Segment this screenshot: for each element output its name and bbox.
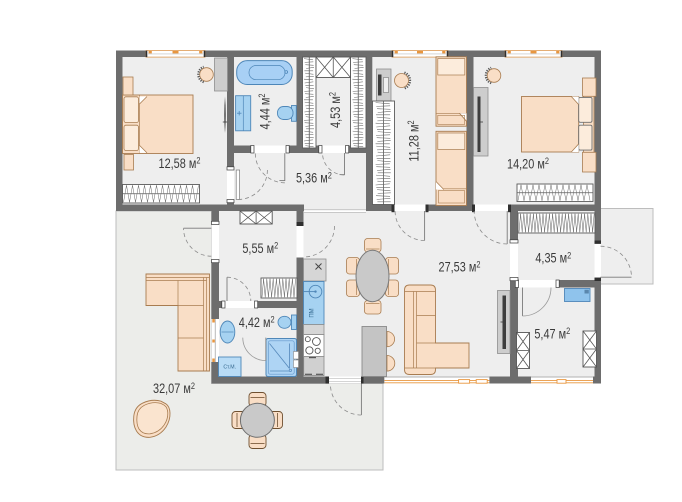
svg-text:4,44 м2: 4,44 м2 (256, 93, 273, 129)
svg-text:4,35 м2: 4,35 м2 (535, 249, 571, 266)
svg-text:5,36 м2: 5,36 м2 (296, 169, 332, 186)
svg-text:32,07 м2: 32,07 м2 (153, 380, 195, 397)
svg-text:5,47 м2: 5,47 м2 (534, 325, 570, 342)
svg-text:ПМ: ПМ (310, 308, 316, 317)
svg-text:4,42 м2: 4,42 м2 (239, 314, 275, 331)
svg-text:5,55 м2: 5,55 м2 (242, 240, 278, 257)
svg-text:12,58 м2: 12,58 м2 (159, 155, 201, 172)
svg-text:27,53 м2: 27,53 м2 (439, 258, 481, 275)
svg-text:14,20 м2: 14,20 м2 (507, 155, 549, 172)
svg-text:Ст.М.: Ст.М. (223, 365, 236, 371)
svg-text:4,53 м2: 4,53 м2 (327, 92, 344, 128)
svg-text:11,28 м2: 11,28 м2 (405, 120, 422, 161)
